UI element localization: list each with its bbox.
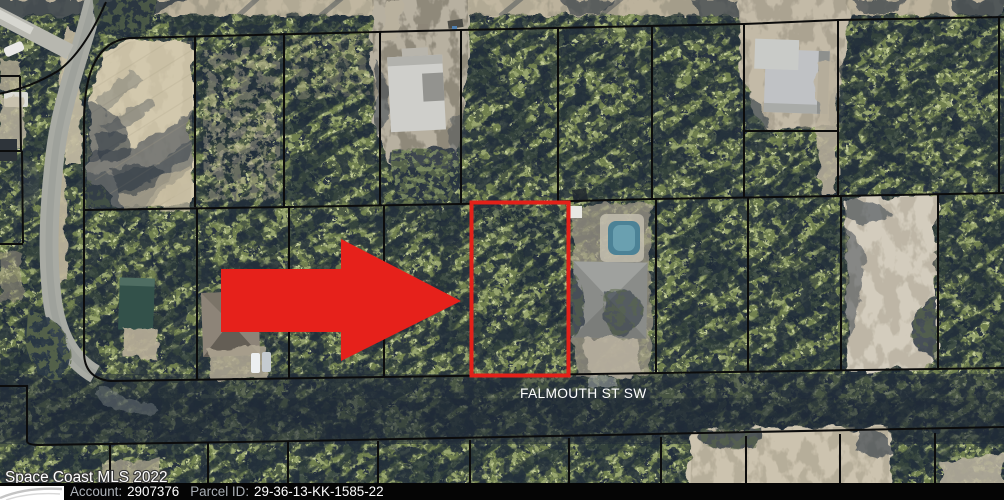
svg-text:Account:2907376Parcel ID:29-36: Account:2907376Parcel ID:29-36-13-KK-158… bbox=[70, 484, 384, 499]
svg-text:FALMOUTH ST SW: FALMOUTH ST SW bbox=[520, 386, 647, 401]
